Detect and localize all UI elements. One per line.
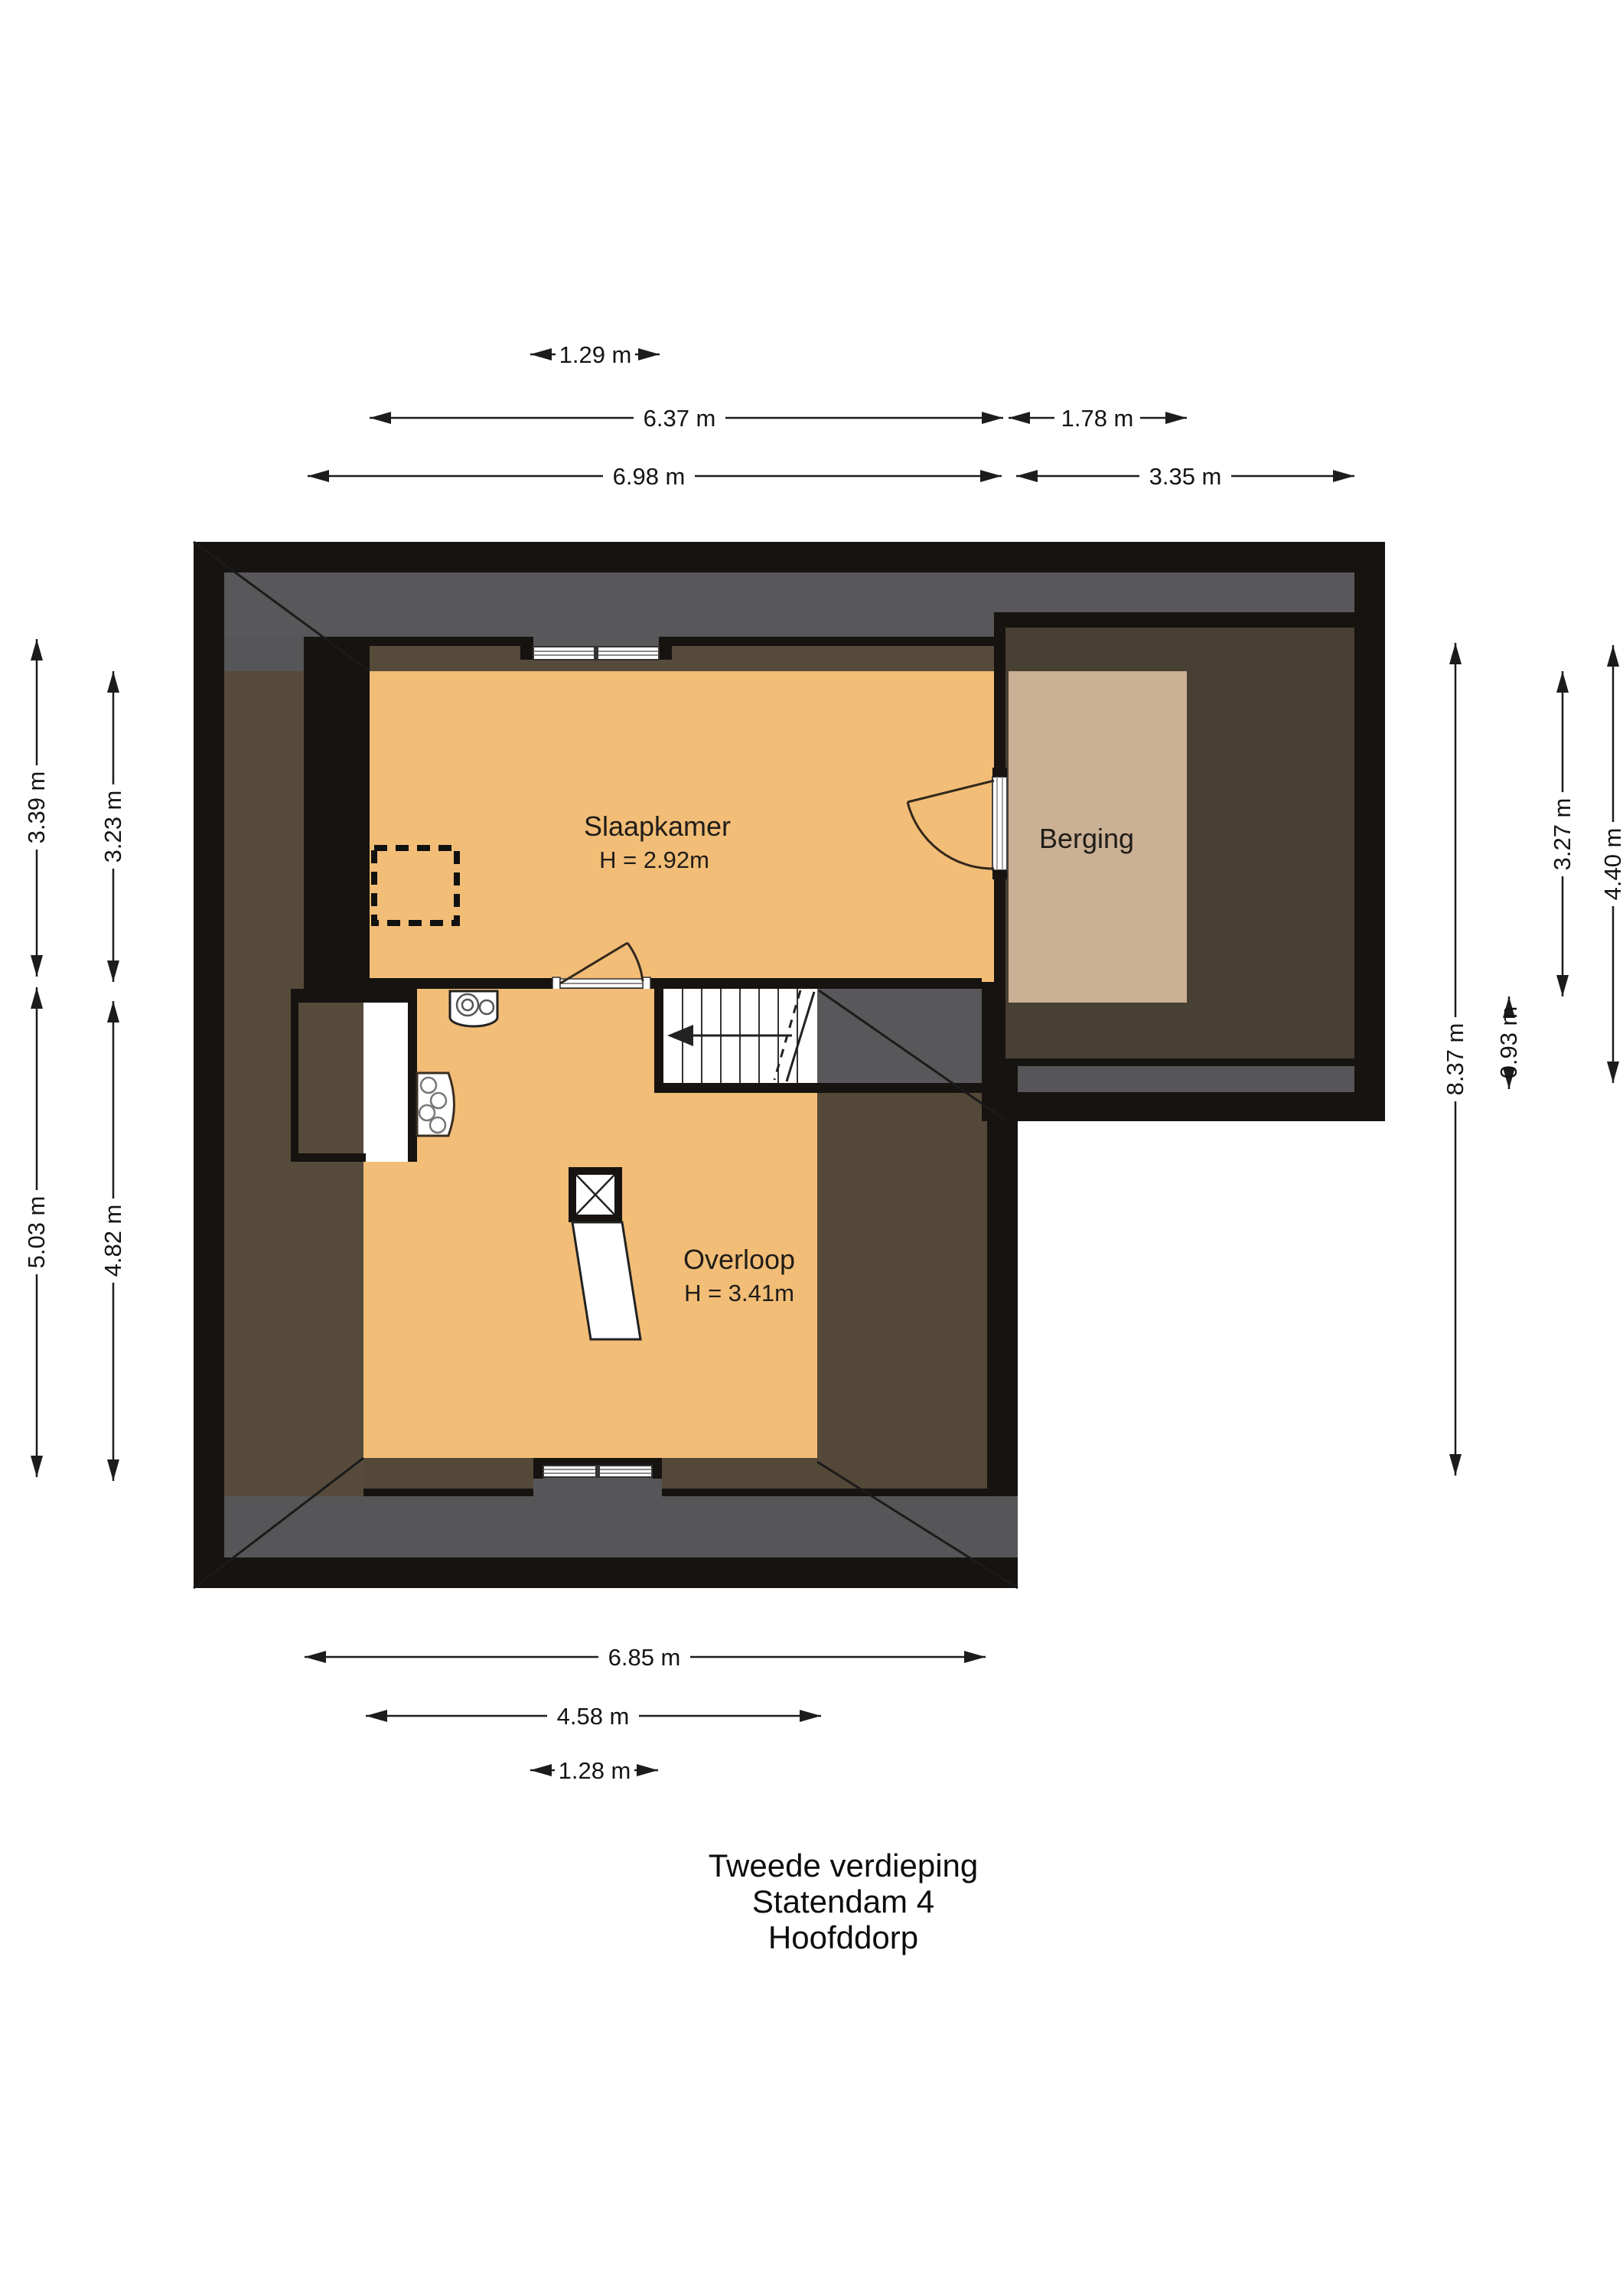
dim-bottom-inner-overloop: 4.58 m [366,1703,821,1730]
svg-text:1.78 m: 1.78 m [1061,405,1134,432]
heater-unit [417,1073,455,1136]
berging-label: Berging [1039,823,1134,854]
roof-south-window-bay [533,1477,662,1496]
attic-band-edge-w [363,1489,533,1496]
berging-south-seam [1005,1058,1354,1066]
north-knee-wall-brown [370,646,994,671]
north-window-bay [533,637,659,647]
stairs [654,989,817,1093]
dim-left-inner-lower: 4.82 m [99,1001,126,1481]
roof-south-band [224,1496,1018,1557]
dim-bottom-outer-main: 6.85 m [305,1644,986,1671]
closet-floor [363,1003,408,1162]
svg-text:5.03 m: 5.03 m [23,1196,50,1269]
dim-top-outer-main: 6.98 m [308,463,1002,490]
division-wall-east [650,978,982,989]
closet-top-wall [297,989,417,1003]
svg-text:4.82 m: 4.82 m [99,1205,126,1277]
overloop-label: Overloop [683,1244,795,1275]
svg-text:3.39 m: 3.39 m [23,771,50,844]
svg-text:6.85 m: 6.85 m [608,1644,681,1671]
division-wall-west [304,978,552,989]
svg-text:1.28 m: 1.28 m [559,1757,631,1784]
roof-nw-pocket [224,637,304,671]
floorplan-drawing: Slaapkamer H = 2.92m Berging Overloop H … [0,0,1623,2296]
dim-right-gap-south-berging: 0.93 m [1495,996,1522,1089]
slaapkamer-west-wall [304,637,370,982]
building-structure [194,542,1385,1588]
svg-text:4.58 m: 4.58 m [557,1703,630,1730]
svg-text:0.93 m: 0.93 m [1495,1006,1522,1079]
svg-text:4.40 m: 4.40 m [1599,828,1623,901]
dim-top-inner-main: 6.37 m [370,405,1003,432]
dim-right-total: 8.37 m [1442,643,1468,1476]
attic-west-upper [224,671,304,982]
svg-text:3.23 m: 3.23 m [99,791,126,863]
svg-text:3.27 m: 3.27 m [1549,798,1576,871]
svg-text:1.29 m: 1.29 m [559,341,632,368]
junction-wall-lower [982,982,1005,1121]
svg-text:6.98 m: 6.98 m [613,463,686,490]
svg-text:6.37 m: 6.37 m [644,405,716,432]
dim-left-outer-lower: 5.03 m [23,987,50,1477]
boiler-unit [450,991,497,1026]
closet-bottom-stub [295,1153,366,1162]
svg-text:3.35 m: 3.35 m [1149,463,1222,490]
dim-right-outer-extension: 4.40 m [1599,645,1623,1083]
north-window-jamb-left [520,637,533,660]
dim-top-window-north: 1.29 m [530,341,660,368]
slaapkamer-height-label: H = 2.92m [599,846,709,873]
title-address: Statendam 4 [752,1883,934,1919]
attic-band-edge-e [662,1489,987,1496]
dim-right-inner-berging: 3.27 m [1549,671,1576,996]
closet-west-line [291,989,298,1162]
roof-north-main [224,612,994,637]
extension-top-wall [994,612,1354,628]
dim-bottom-window-south: 1.28 m [530,1757,658,1784]
stairs-south-wall [654,1083,817,1093]
plan-title: Tweede verdieping Statendam 4 Hoofddorp [709,1848,979,1955]
overloop-height-label: H = 3.41m [684,1280,794,1306]
dim-left-inner-upper: 3.23 m [99,671,126,982]
south-window [533,1466,662,1479]
north-window-jamb-right [659,637,672,660]
dim-top-inner-berging: 1.78 m [1009,405,1187,432]
north-knee-wall-line [370,637,994,646]
dim-left-outer-upper: 3.39 m [23,639,50,977]
dim-top-outer-extension: 3.35 m [1016,463,1354,490]
north-window [533,647,659,660]
title-city: Hoofddorp [768,1919,918,1955]
title-floor: Tweede verdieping [709,1848,979,1883]
roof-north-band [224,572,1354,612]
roof-extension-south-band [1018,1066,1354,1092]
slaapkamer-label: Slaapkamer [584,810,731,842]
roof-over-stairs [817,989,982,1083]
svg-text:8.37 m: 8.37 m [1442,1023,1468,1096]
floorplan-page: Slaapkamer H = 2.92m Berging Overloop H … [0,0,1623,2296]
closet-east-wall [408,989,417,1162]
